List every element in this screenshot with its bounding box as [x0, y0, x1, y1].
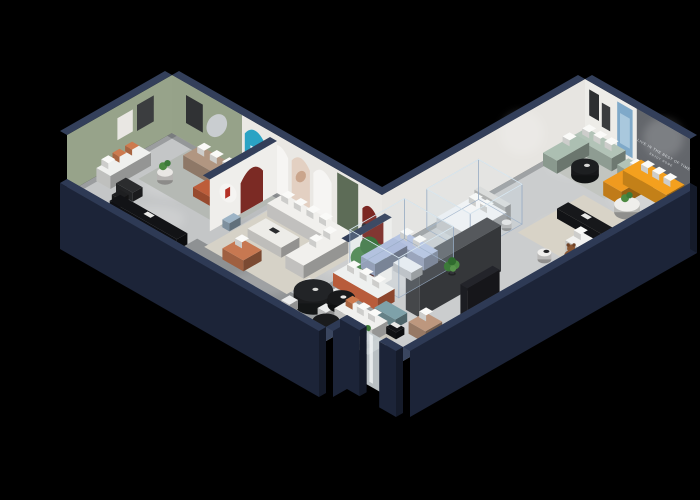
side-table-white-decor [543, 250, 549, 253]
dining-table-black-decor [312, 288, 318, 291]
wall-south-left-end-0 [319, 327, 326, 397]
wall-south-right-end-1 [396, 347, 403, 417]
coffee-table-white-round-plant-leaf-2 [626, 192, 632, 198]
coffee-table-black-round [571, 158, 599, 183]
cactus-plant-foliage-3 [448, 257, 456, 265]
coffee-table-black-round-decor [584, 164, 590, 167]
frame-dark-b [602, 103, 610, 132]
wall-south-right-outer-0 [340, 319, 360, 396]
wall-south-right-end-0 [360, 326, 367, 396]
wall-south-right-outer-1 [379, 341, 396, 417]
wall-south-right-mirror-streak [369, 334, 373, 384]
coffee-table-oval-black-decor [340, 295, 346, 298]
floorplan-3d-scene: LIVE IN THE BEST OF TIMEENJOY HOME [0, 0, 700, 500]
cactus-plant-foliage-4 [450, 265, 456, 271]
side-table-plant-plant-leaf-2 [164, 160, 170, 166]
wall-east-right-end-0 [690, 183, 697, 253]
side-table-white [537, 248, 551, 263]
page-body: { "scene": { "canvas": {"w": 700, "h": 5… [0, 0, 700, 500]
teddy-ear-right [572, 243, 575, 246]
art-abstract-blue-streak [620, 113, 630, 149]
showroom-render-stage: LIVE IN THE BEST OF TIMEENJOY HOME [0, 0, 700, 500]
teddy-ear-left [567, 243, 570, 246]
